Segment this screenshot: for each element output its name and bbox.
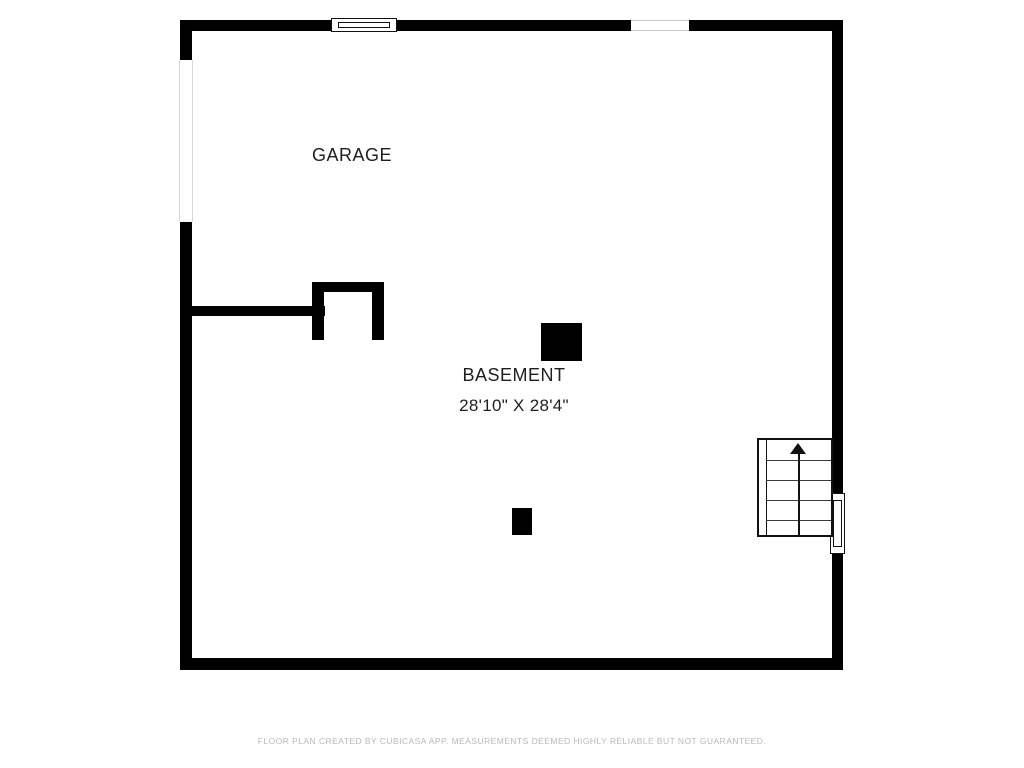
wall-top [180, 20, 843, 31]
door-frame-right-wall [372, 282, 384, 340]
floor-plan: GARAGE BASEMENT 28'10" X 28'4" FLOOR PLA… [0, 0, 1024, 768]
basement-label: BASEMENT [462, 366, 565, 384]
basement-dimensions: 28'10" X 28'4" [459, 397, 569, 414]
stair-direction-line [798, 452, 800, 535]
support-post-large [541, 323, 582, 361]
partition-wall [192, 306, 325, 316]
arrow-up-icon [790, 443, 806, 454]
staircase [757, 438, 833, 537]
garage-window [331, 18, 397, 32]
left-wall-opening [179, 60, 193, 222]
garage-label: GARAGE [312, 146, 392, 164]
window-pane-icon [338, 22, 390, 28]
wall-right [832, 20, 843, 670]
window-pane-icon [833, 500, 842, 547]
wall-bottom [180, 658, 843, 670]
footer-disclaimer: FLOOR PLAN CREATED BY CUBICASA APP. MEAS… [0, 736, 1024, 747]
top-wall-opening [631, 20, 689, 31]
support-post-small [512, 508, 532, 535]
